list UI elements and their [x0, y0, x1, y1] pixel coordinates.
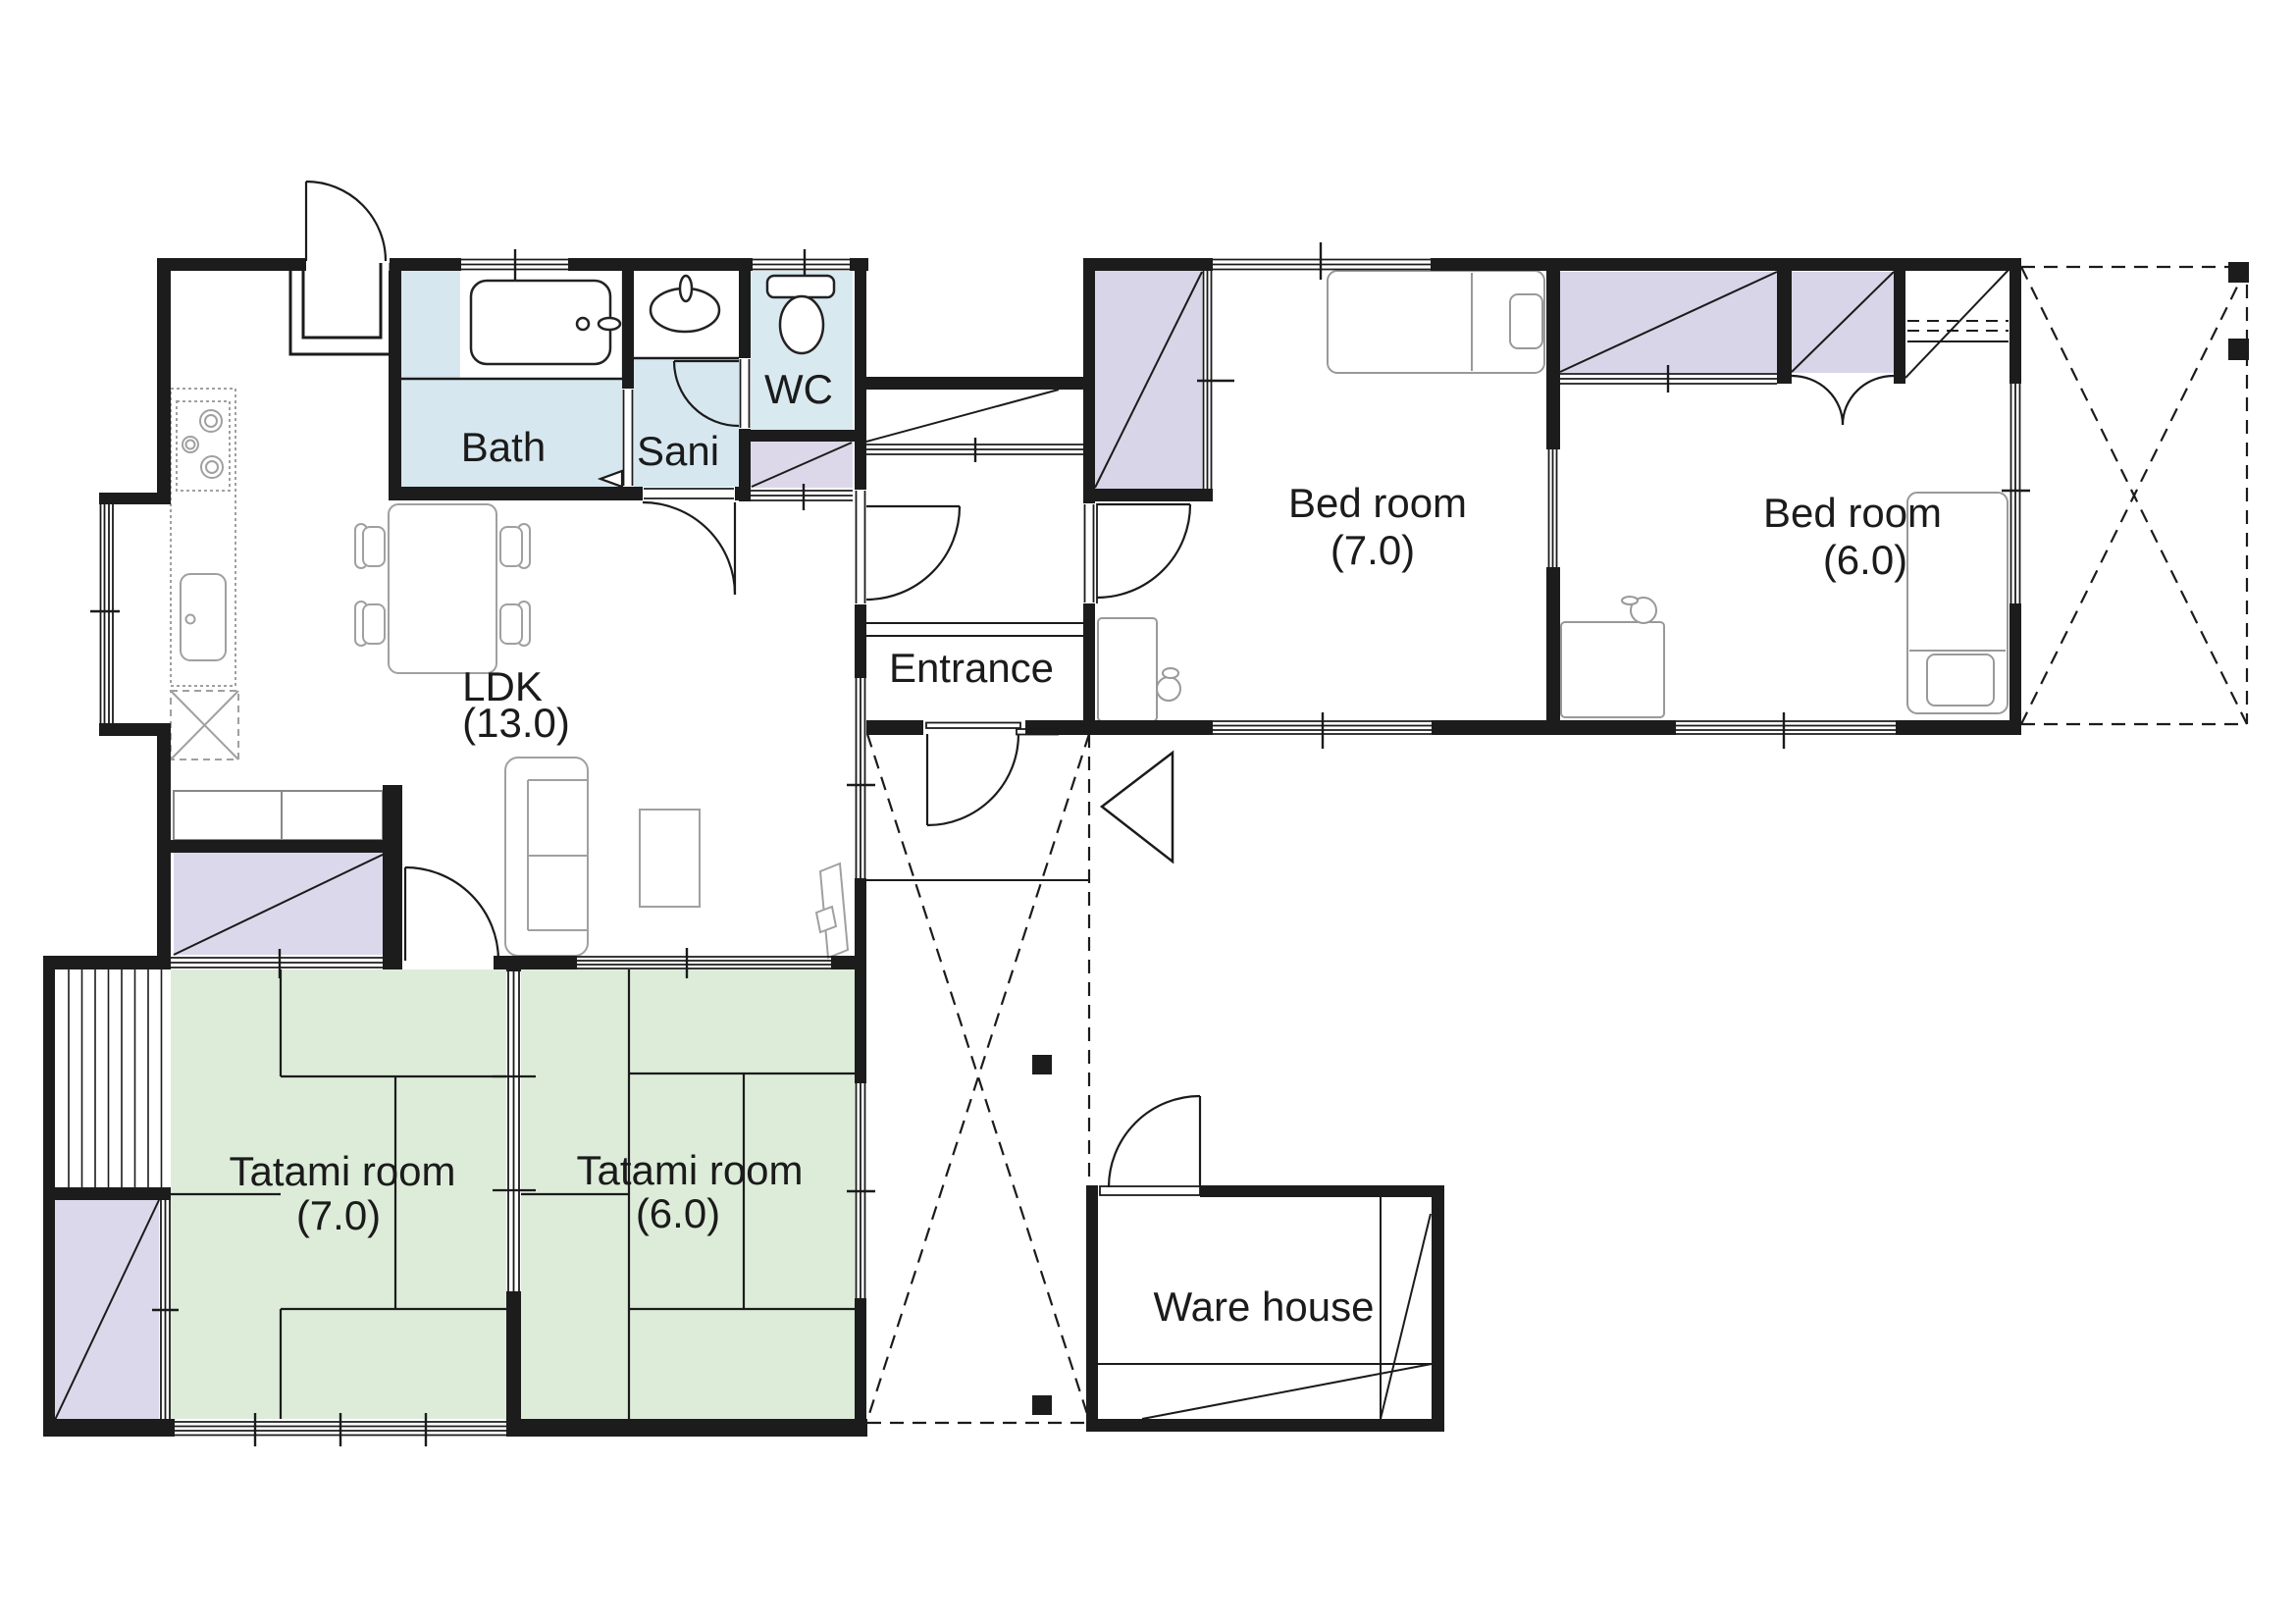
svg-text:WC: WC	[764, 366, 833, 412]
svg-text:Bed room: Bed room	[1763, 490, 1942, 536]
svg-text:Sani: Sani	[637, 428, 719, 474]
svg-text:Tatami room: Tatami room	[229, 1148, 455, 1194]
svg-text:Bath: Bath	[461, 424, 546, 470]
svg-text:(7.0): (7.0)	[1331, 527, 1415, 573]
svg-text:Entrance: Entrance	[889, 645, 1054, 691]
svg-text:(6.0): (6.0)	[636, 1190, 720, 1236]
svg-text:(7.0): (7.0)	[296, 1192, 381, 1238]
svg-text:Bed room: Bed room	[1288, 480, 1467, 526]
svg-text:(13.0): (13.0)	[462, 700, 570, 746]
svg-text:(6.0): (6.0)	[1823, 537, 1907, 583]
svg-text:Ware house: Ware house	[1154, 1283, 1375, 1330]
svg-text:Tatami room: Tatami room	[576, 1147, 803, 1193]
